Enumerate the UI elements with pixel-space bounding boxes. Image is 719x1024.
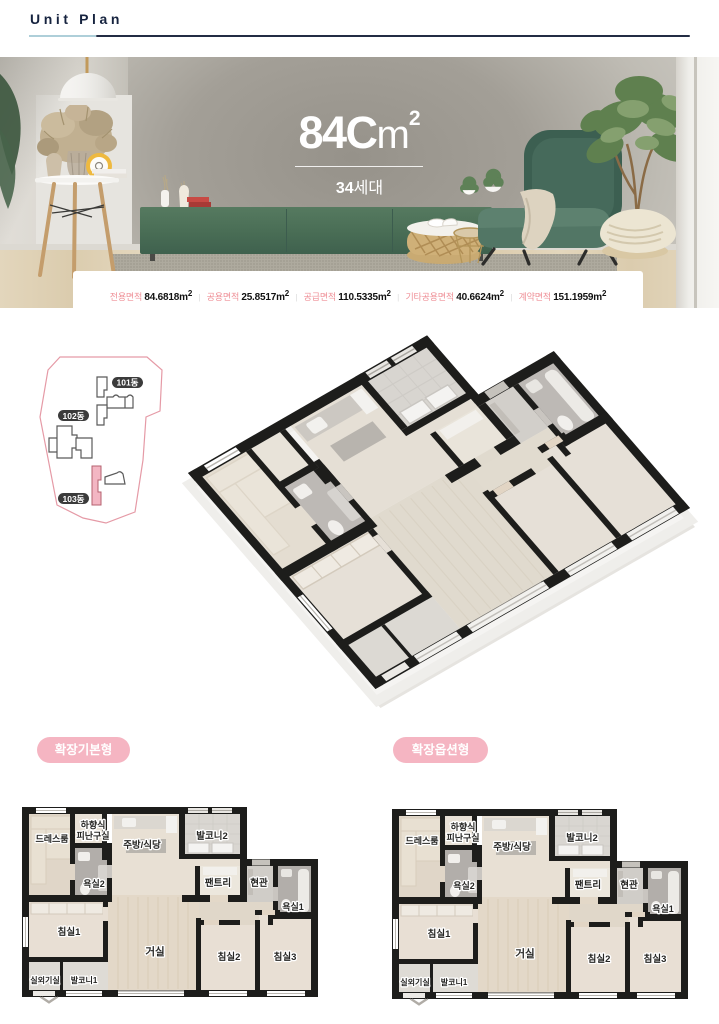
svg-text:침실2: 침실2 (218, 951, 241, 963)
svg-text:팬트리: 팬트리 (205, 877, 231, 889)
svg-text:침실2: 침실2 (588, 953, 611, 965)
svg-text:침실1: 침실1 (428, 928, 451, 940)
svg-text:피난구실: 피난구실 (76, 830, 109, 841)
svg-text:101동: 101동 (116, 378, 138, 388)
svg-text:거실: 거실 (515, 947, 534, 960)
svg-text:침실1: 침실1 (58, 926, 81, 938)
svg-text:욕실1: 욕실1 (652, 903, 674, 914)
svg-text:발코니2: 발코니2 (196, 830, 228, 842)
svg-text:103동: 103동 (62, 494, 84, 504)
svg-text:주방/식당: 주방/식당 (493, 841, 531, 853)
svg-text:거실: 거실 (145, 945, 164, 958)
svg-text:침실3: 침실3 (274, 951, 297, 963)
svg-text:현관: 현관 (250, 877, 268, 889)
svg-text:발코니2: 발코니2 (566, 832, 598, 844)
svg-text:피난구실: 피난구실 (446, 832, 479, 843)
svg-text:드레스룸: 드레스룸 (405, 835, 438, 846)
svg-text:발코니1: 발코니1 (441, 977, 468, 987)
svg-text:팬트리: 팬트리 (575, 879, 601, 891)
svg-text:욕실2: 욕실2 (453, 880, 475, 891)
svg-text:욕실1: 욕실1 (282, 901, 304, 912)
svg-text:발코니1: 발코니1 (71, 975, 98, 985)
svg-text:하향식: 하향식 (81, 819, 106, 830)
svg-text:102동: 102동 (62, 411, 84, 421)
svg-text:실외기실: 실외기실 (30, 975, 59, 985)
svg-text:하향식: 하향식 (451, 821, 476, 832)
svg-text:실외기실: 실외기실 (400, 977, 429, 987)
svg-text:현관: 현관 (620, 879, 638, 891)
svg-text:드레스룸: 드레스룸 (35, 833, 68, 844)
svg-text:주방/식당: 주방/식당 (123, 839, 161, 851)
svg-text:침실3: 침실3 (644, 953, 667, 965)
svg-text:욕실2: 욕실2 (83, 878, 105, 889)
